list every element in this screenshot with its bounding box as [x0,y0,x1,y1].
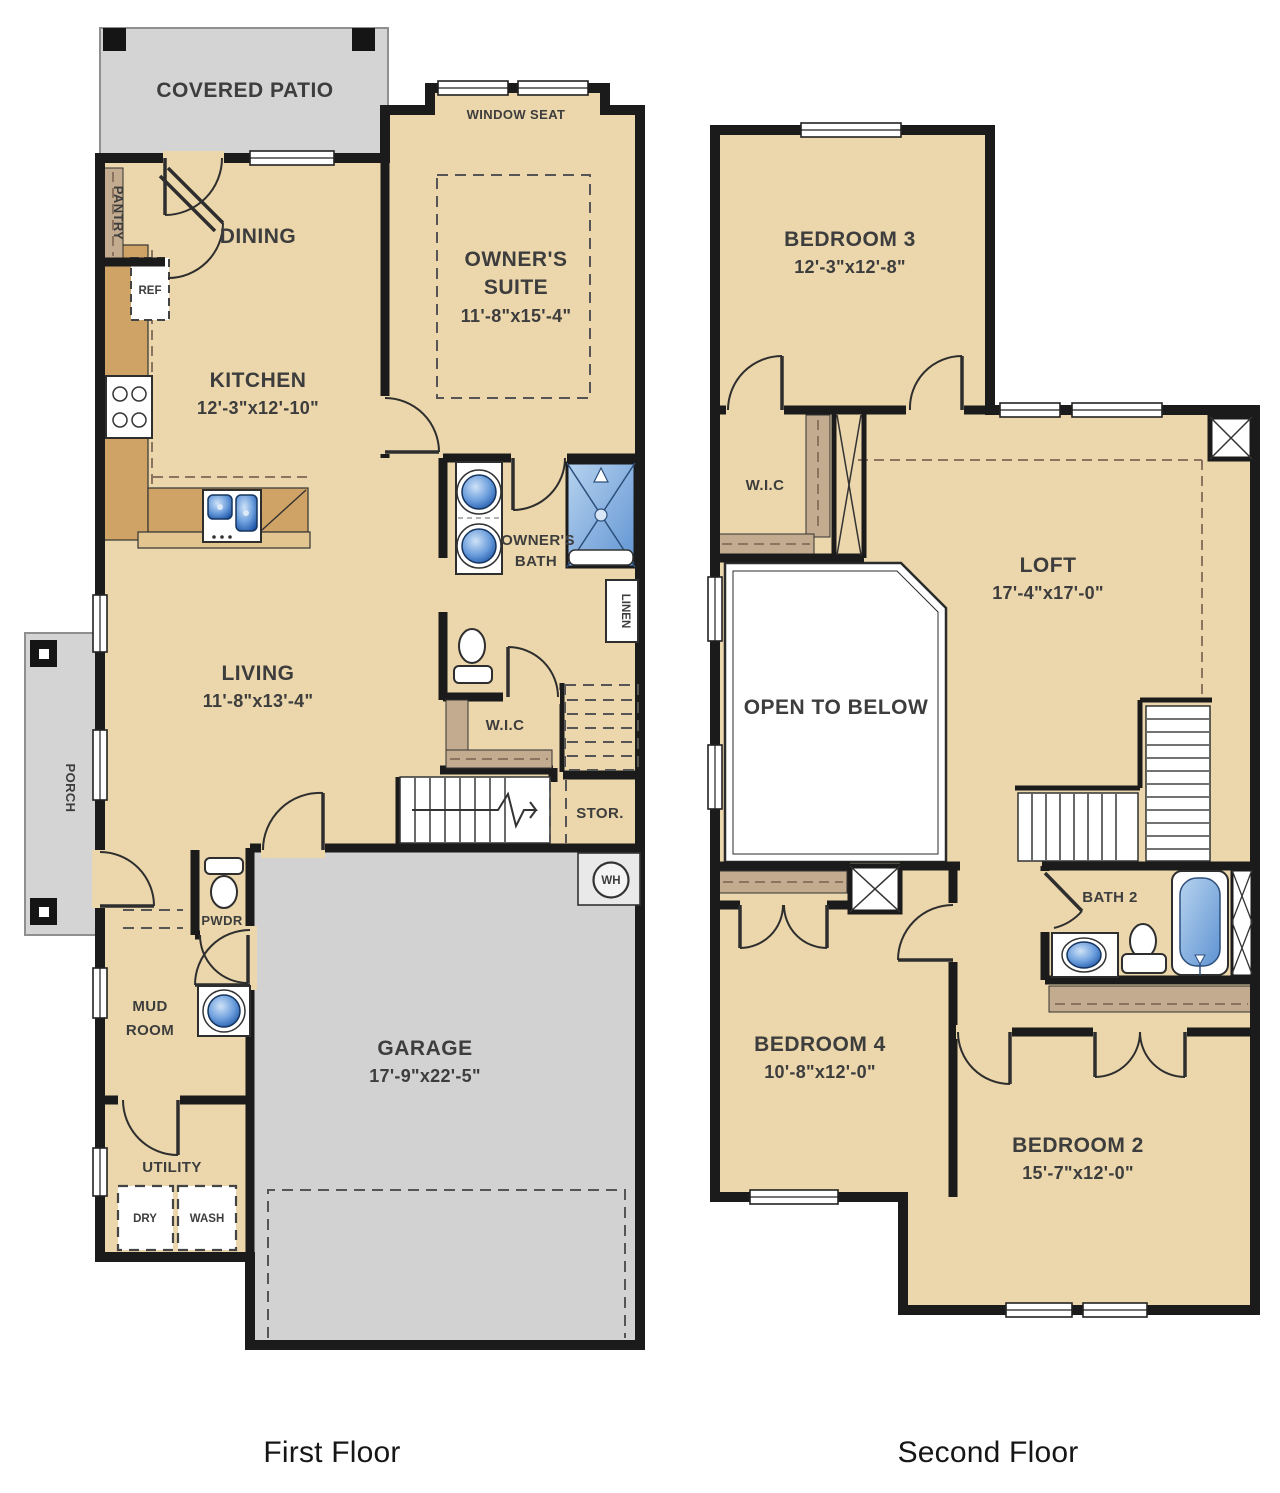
water-heater: WH [578,853,640,905]
loft-label: LOFT [1020,554,1077,577]
linen-label: LINEN [619,594,631,629]
open-to-below-label: OPEN TO BELOW [744,696,929,719]
first-floor-plan: WH COVERED PATIO WINDOW SEAT PANTRY DINI… [25,28,640,1345]
bedroom4-dims: 10'-8"x12'-0" [764,1062,876,1082]
garage-label: GARAGE [377,1037,472,1060]
range-cooktop [106,376,152,438]
first-wic-label: W.I.C [486,717,525,734]
living-dims: 11'-8"x13'-4" [203,691,314,711]
bath2-label: BATH 2 [1082,889,1137,906]
bath2-vanity [1052,933,1118,977]
bedroom2-label: BEDROOM 2 [1012,1134,1144,1157]
owners-suite-label-2: SUITE [484,276,548,299]
garage-dims: 17'-9"x22'-5" [369,1066,481,1086]
kitchen-dims: 12'-3"x12'-10" [197,398,319,418]
owners-bath-label-2: BATH [515,553,557,570]
bedroom3-label: BEDROOM 3 [784,228,916,251]
mud-room-label-2: ROOM [126,1022,174,1039]
utility-label: UTILITY [142,1159,201,1176]
kitchen-label: KITCHEN [210,369,307,392]
pantry-label: PANTRY [111,186,126,240]
bedroom4-closet [719,871,847,893]
bath-chase-strip [1232,870,1252,976]
second-floor-caption: Second Floor [898,1436,1079,1469]
floorplan-page: WH COVERED PATIO WINDOW SEAT PANTRY DINI… [0,0,1280,1493]
owners-bath-vanity [456,462,502,574]
dry-label: DRY [133,1213,157,1225]
owners-suite-dims: 11'-8"x15'-4" [461,306,572,326]
bedroom3-dims: 12'-3"x12'-8" [794,257,906,277]
first-floor-caption: First Floor [263,1436,400,1469]
covered-patio-label: COVERED PATIO [156,79,333,102]
bedroom4-label: BEDROOM 4 [754,1033,886,1056]
loft-dims: 17'-4"x17'-0" [992,583,1104,603]
bathtub [1172,871,1228,975]
garage-area [250,850,640,1345]
stor-label: STOR. [576,805,624,822]
second-floor-plan: BEDROOM 3 12'-3"x12'-8" W.I.C LOFT 17'-4… [708,123,1255,1317]
loft-chase-box [1210,417,1252,459]
patio-post [352,28,375,51]
owners-suite-label-1: OWNER'S [465,248,568,271]
water-heater-label: WH [601,875,620,887]
owners-bath-label-1: OWNER'S [501,532,575,549]
ref-label: REF [139,285,162,297]
porch-area [25,633,100,935]
floorplan-drawing: WH COVERED PATIO WINDOW SEAT PANTRY DINI… [0,0,1280,1493]
second-wic-label: W.I.C [746,477,785,494]
dining-label: DINING [220,225,297,248]
mud-room-sink [198,986,250,1036]
bedroom2-closet [1049,986,1251,1012]
pwdr-label: PWDR [201,913,243,928]
bedroom2-dims: 15'-7"x12'-0" [1022,1163,1134,1183]
mud-room-label-1: MUD [132,998,167,1015]
window-seat-label: WINDOW SEAT [467,107,566,122]
patio-post [103,28,126,51]
porch-label: PORCH [63,764,78,813]
wash-label: WASH [190,1213,225,1225]
shower [567,463,635,567]
kitchen-sink [203,490,261,542]
living-label: LIVING [221,662,294,685]
hall-chase-box [850,866,900,912]
